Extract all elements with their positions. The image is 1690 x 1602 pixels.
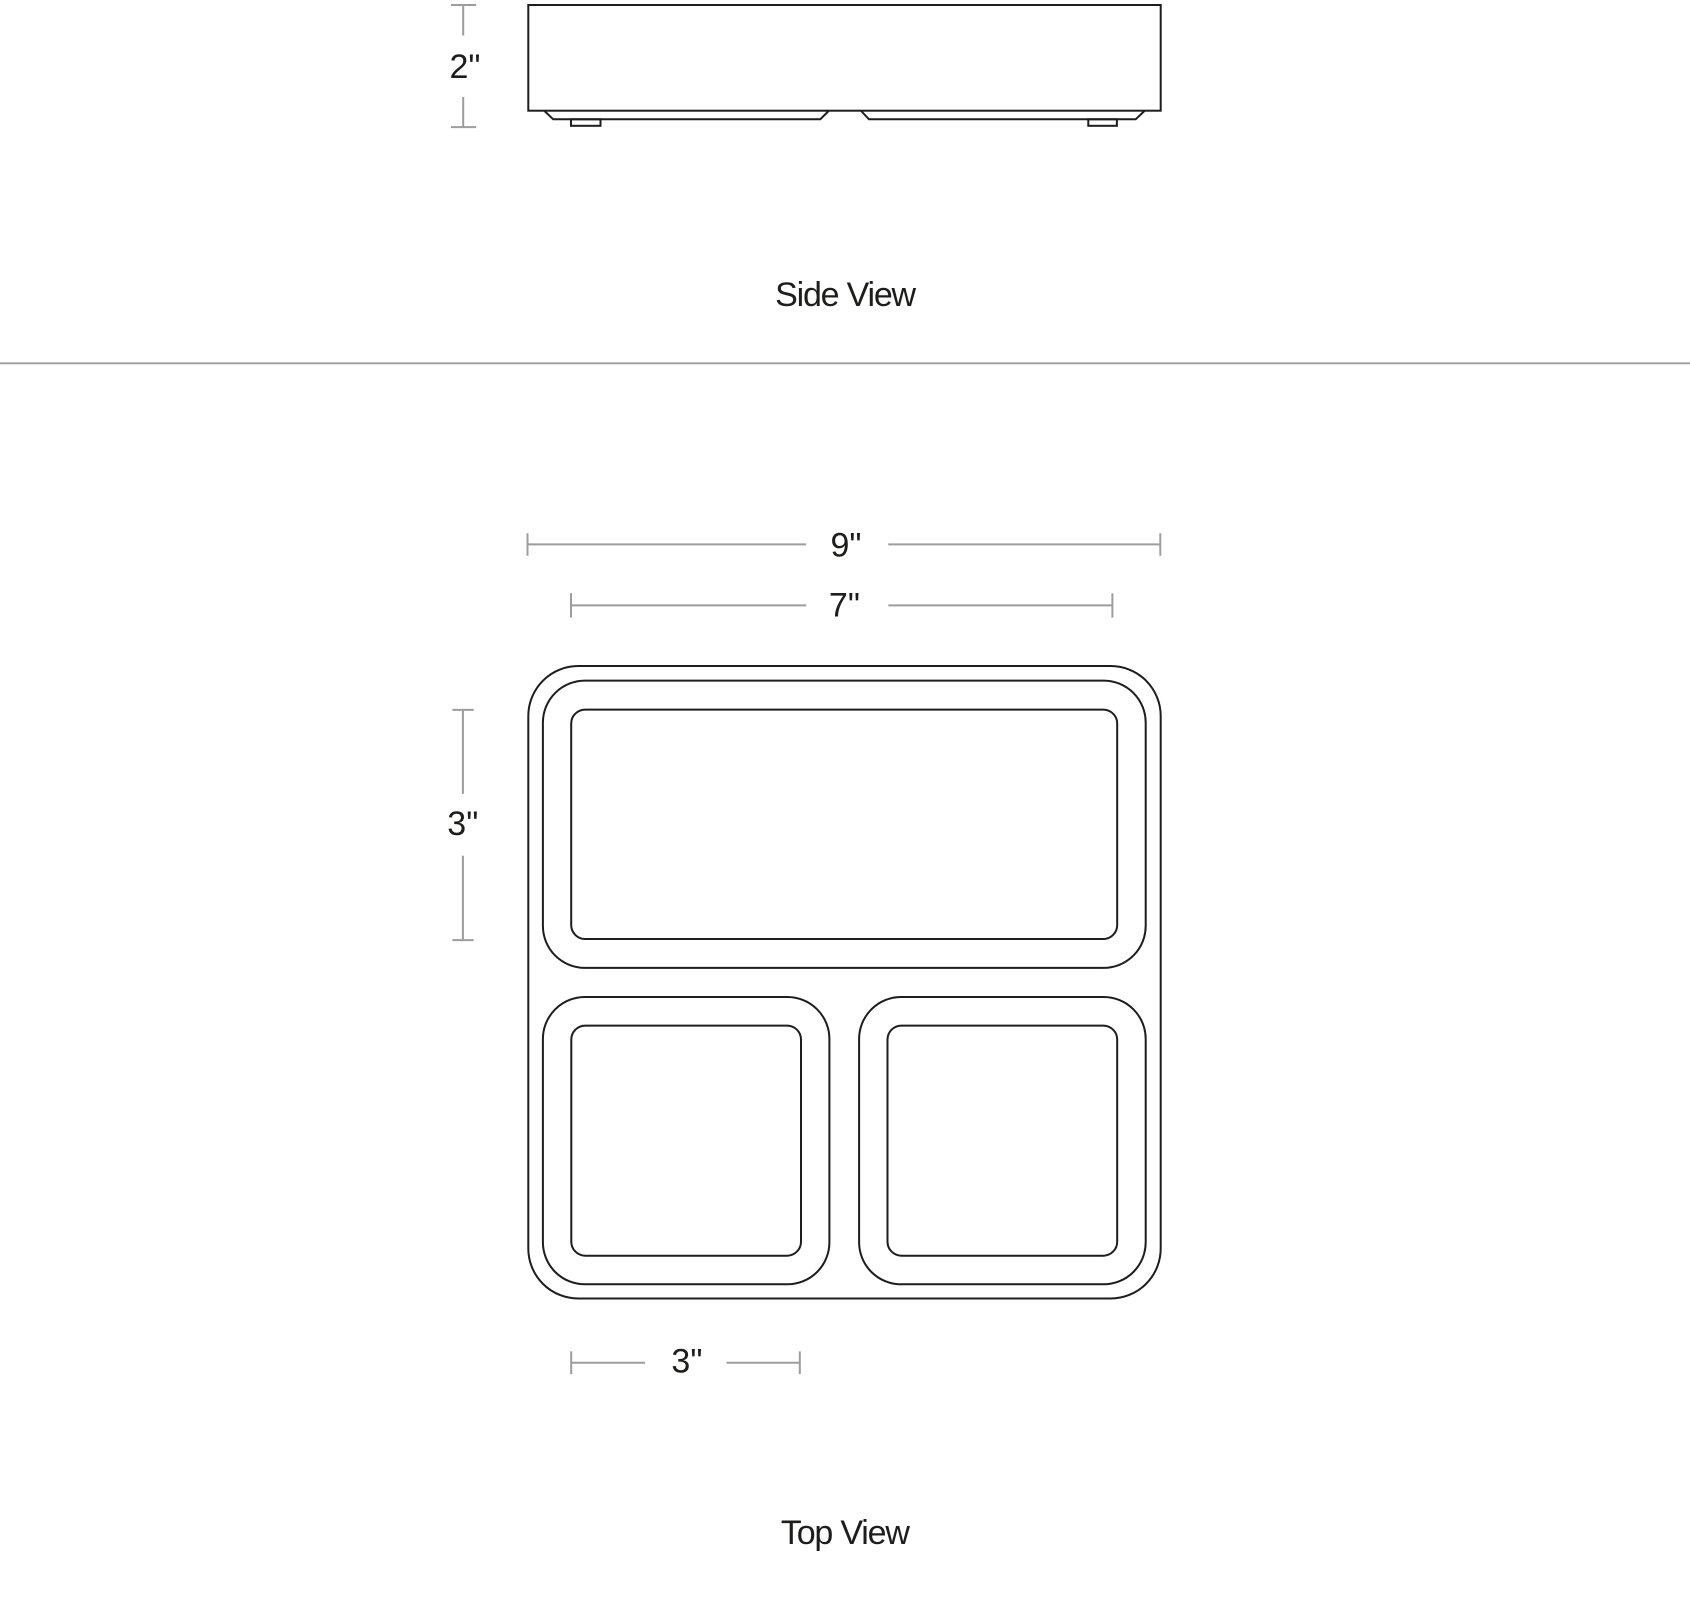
svg-text:Top View: Top View: [781, 1514, 910, 1552]
svg-text:3": 3": [447, 805, 478, 843]
svg-text:Side View: Side View: [775, 276, 916, 314]
svg-text:2": 2": [450, 48, 481, 86]
svg-text:3": 3": [671, 1342, 702, 1380]
svg-text:9": 9": [831, 527, 862, 565]
svg-text:7": 7": [829, 587, 860, 625]
